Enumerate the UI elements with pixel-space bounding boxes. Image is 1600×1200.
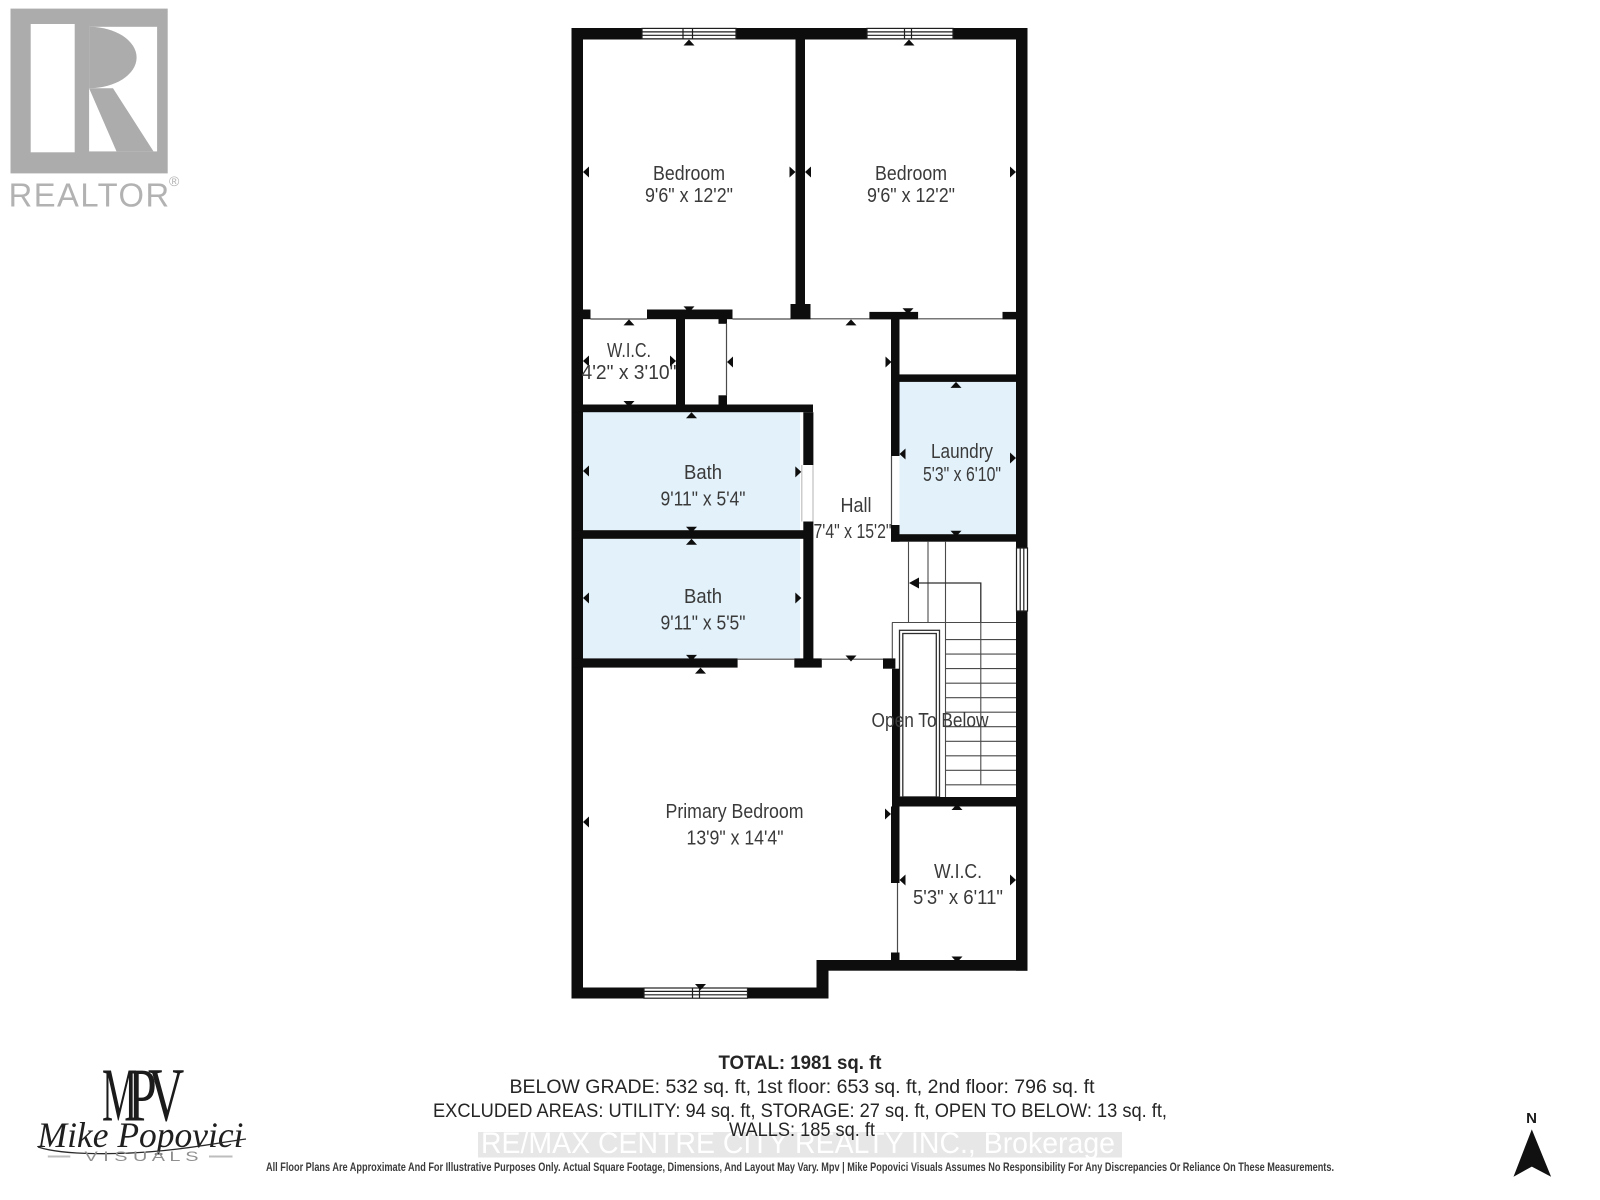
svg-text:Bath: Bath [684,462,722,484]
svg-text:Open To Below: Open To Below [872,710,989,732]
svg-text:WALLS: 185 sq. ft: WALLS: 185 sq. ft [729,1120,876,1141]
svg-text:4'2" x 3'10": 4'2" x 3'10" [582,362,677,384]
svg-text:Bath: Bath [684,586,722,608]
svg-text:7'4" x 15'2": 7'4" x 15'2" [814,521,892,543]
svg-text:TOTAL: 1981 sq. ft: TOTAL: 1981 sq. ft [719,1053,883,1074]
svg-text:W.I.C.: W.I.C. [934,861,982,883]
svg-text:Laundry: Laundry [931,441,993,463]
svg-text:Bedroom: Bedroom [875,163,947,185]
svg-text:9'6" x 12'2": 9'6" x 12'2" [867,185,955,207]
svg-text:9'11" x 5'5": 9'11" x 5'5" [661,613,746,635]
svg-text:N: N [1526,1110,1537,1127]
svg-text:9'6" x 12'2": 9'6" x 12'2" [645,185,733,207]
svg-text:W.I.C.: W.I.C. [607,340,651,362]
svg-text:13'9" x 14'4": 13'9" x 14'4" [687,828,784,850]
svg-text:5'3" x 6'11": 5'3" x 6'11" [913,887,1003,909]
svg-text:®: ® [169,173,180,189]
svg-text:BELOW GRADE: 532 sq. ft, 1st f: BELOW GRADE: 532 sq. ft, 1st floor: 653 … [510,1077,1096,1098]
svg-text:Hall: Hall [841,495,872,517]
svg-text:All Floor Plans Are Approximat: All Floor Plans Are Approximate And For … [266,1162,1334,1174]
svg-text:9'11" x 5'4": 9'11" x 5'4" [661,489,746,511]
svg-text:V I S U A L S: V I S U A L S [85,1149,199,1164]
svg-text:5'3" x 6'10": 5'3" x 6'10" [923,464,1001,486]
svg-text:Primary Bedroom: Primary Bedroom [666,801,804,823]
svg-text:REALTOR: REALTOR [9,177,171,214]
svg-text:EXCLUDED AREAS: UTILITY: 94 sq: EXCLUDED AREAS: UTILITY: 94 sq. ft, STOR… [433,1101,1167,1122]
svg-text:Bedroom: Bedroom [653,163,725,185]
